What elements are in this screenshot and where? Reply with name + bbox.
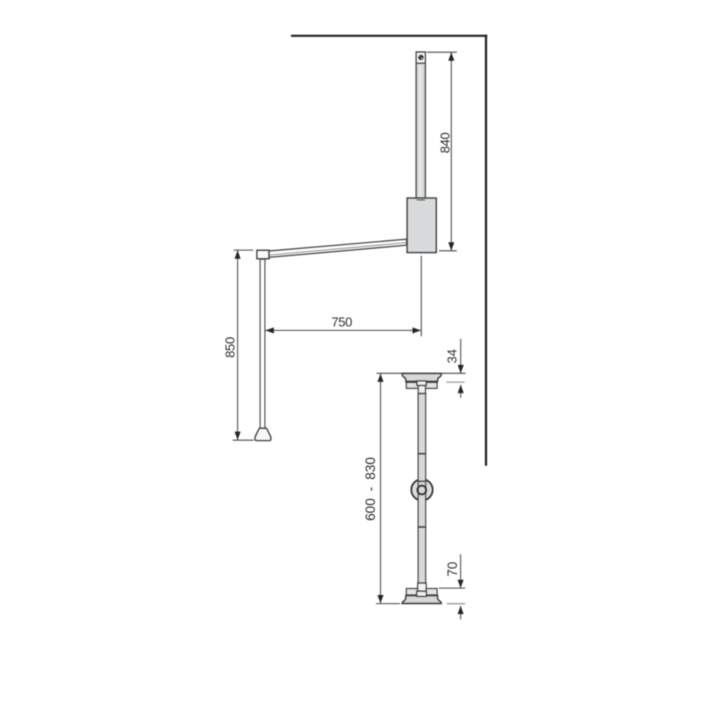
- svg-text:840: 840: [437, 132, 452, 153]
- svg-text:850: 850: [222, 337, 237, 358]
- svg-text:34: 34: [444, 349, 459, 363]
- svg-text:70: 70: [445, 562, 460, 577]
- svg-text:750: 750: [331, 315, 352, 330]
- svg-text:600 - 830: 600 - 830: [363, 457, 378, 521]
